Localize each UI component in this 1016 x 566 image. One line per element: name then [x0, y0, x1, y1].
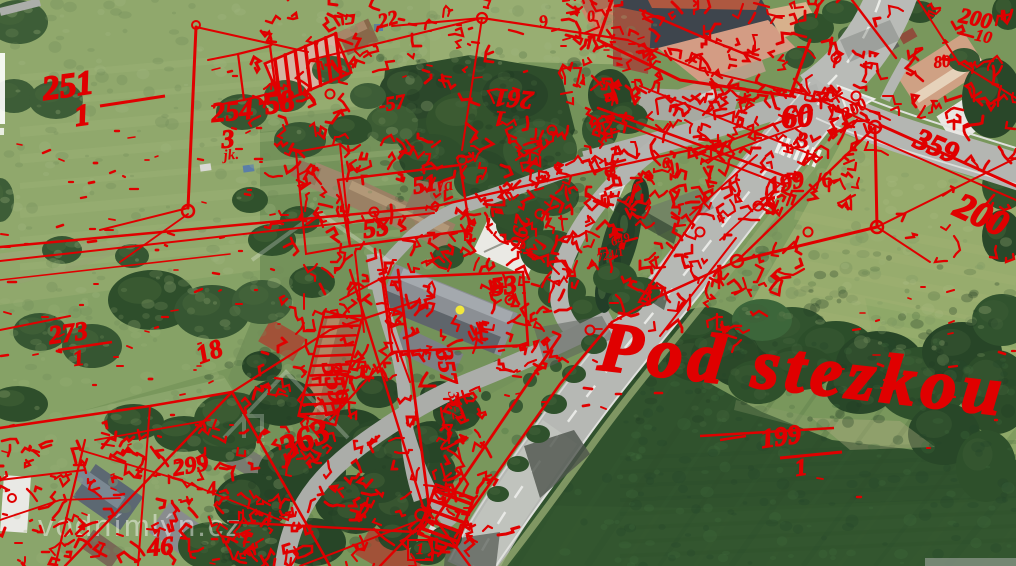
svg-text:55: 55: [361, 212, 391, 244]
svg-text:53: 53: [489, 270, 519, 302]
svg-text:jk.: jk.: [221, 147, 240, 164]
svg-text:1: 1: [493, 106, 506, 132]
svg-text:273: 273: [46, 316, 90, 350]
svg-text:1: 1: [416, 541, 424, 558]
svg-text:80: 80: [933, 52, 952, 72]
svg-text:46: 46: [145, 531, 174, 562]
svg-text:3: 3: [795, 127, 809, 153]
svg-text:58: 58: [262, 84, 296, 121]
svg-text:51: 51: [411, 170, 439, 200]
svg-text:199: 199: [759, 419, 804, 454]
svg-text:0: 0: [662, 155, 670, 172]
